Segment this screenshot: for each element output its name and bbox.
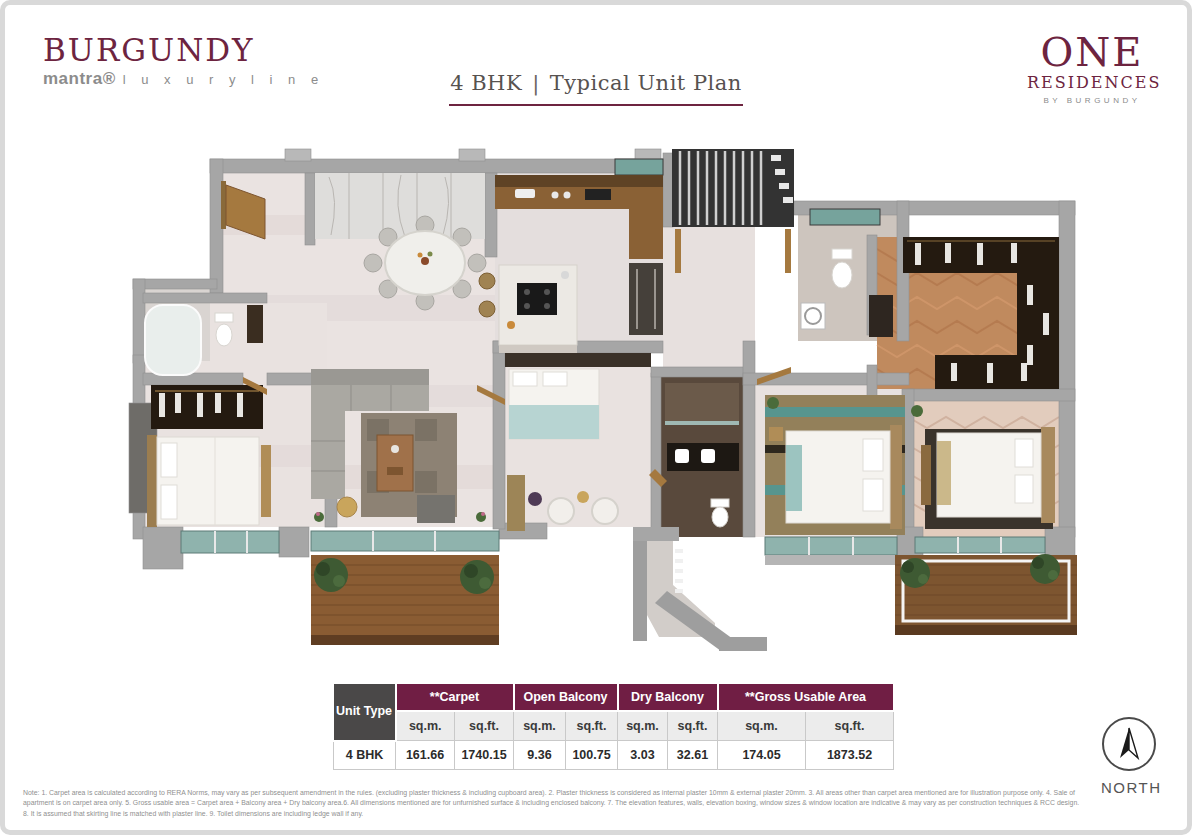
unit-header: sq.m. xyxy=(618,711,668,741)
table-group-open-balcony: Open Balcony xyxy=(514,684,618,711)
north-compass: NORTH xyxy=(1101,717,1157,796)
table-group-carpet: **Carpet xyxy=(396,684,514,711)
cell-open-balcony-sqm: 9.36 xyxy=(514,741,566,770)
unit-header: sq.m. xyxy=(396,711,455,741)
floor-plan-render xyxy=(115,145,1095,673)
one-residences-logo: ONE RESIDENCES BY BURGUNDY xyxy=(1027,33,1157,105)
dry-balcony xyxy=(633,527,767,651)
cell-gross-sqft: 1873.52 xyxy=(806,741,894,770)
logo-residences: RESIDENCES xyxy=(1027,73,1157,92)
cell-carpet-sqm: 161.66 xyxy=(396,741,455,770)
unit-header: sq.ft. xyxy=(455,711,514,741)
brand-title: BURGUNDY xyxy=(43,35,324,66)
unit-header: sq.m. xyxy=(514,711,566,741)
burgundy-mantra-logo: BURGUNDY mantra® l u x u r y l i n e xyxy=(43,35,324,89)
cell-unit-type: 4 BHK xyxy=(334,741,396,770)
bedroom-2 xyxy=(765,395,905,535)
unit-header: sq.ft. xyxy=(668,711,718,741)
title-underline xyxy=(449,104,743,106)
title-separator: | xyxy=(532,71,540,95)
compass-icon xyxy=(1102,717,1156,771)
brand-sub-mantra: mantra® xyxy=(43,69,116,89)
disclaimer-note: Note: 1. Carpet area is calculated accor… xyxy=(23,788,1083,819)
table-group-dry-balcony: Dry Balcony xyxy=(618,684,718,711)
unit-header: sq.ft. xyxy=(806,711,894,741)
title-label: Typical Unit Plan xyxy=(550,71,742,95)
logo-one: ONE xyxy=(1027,33,1157,71)
table-row: 4 BHK 161.66 1740.15 9.36 100.75 3.03 32… xyxy=(334,741,894,770)
table-corner-header: Unit Type xyxy=(334,684,396,741)
unit-header: sq.ft. xyxy=(566,711,618,741)
master-wardrobe xyxy=(151,385,263,429)
cell-dry-balcony-sqm: 3.03 xyxy=(618,741,668,770)
area-table: Unit Type **Carpet Open Balcony Dry Balc… xyxy=(333,684,895,770)
cell-dry-balcony-sqft: 32.61 xyxy=(668,741,718,770)
living-balcony-deck xyxy=(311,555,499,645)
cell-open-balcony-sqft: 100.75 xyxy=(566,741,618,770)
master-bed xyxy=(147,435,271,527)
title-unit: 4 BHK xyxy=(450,71,522,95)
brand-sub-tagline: l u x u r y l i n e xyxy=(123,72,324,87)
unit-header: sq.m. xyxy=(718,711,806,741)
brochure-page: BURGUNDY mantra® l u x u r y l i n e 4 B… xyxy=(0,0,1192,835)
bedroom-3-balcony-deck xyxy=(895,554,1077,635)
logo-by-burgundy: BY BURGUNDY xyxy=(1027,96,1157,105)
north-label: NORTH xyxy=(1101,779,1157,796)
table-group-gross-usable: **Gross Usable Area xyxy=(718,684,894,711)
table-unit-row: sq.m. sq.ft. sq.m. sq.ft. sq.m. sq.ft. s… xyxy=(334,711,894,741)
cell-gross-sqm: 174.05 xyxy=(718,741,806,770)
dining-table xyxy=(364,216,486,310)
cell-carpet-sqft: 1740.15 xyxy=(455,741,514,770)
page-title: 4 BHK|Typical Unit Plan xyxy=(449,71,743,106)
